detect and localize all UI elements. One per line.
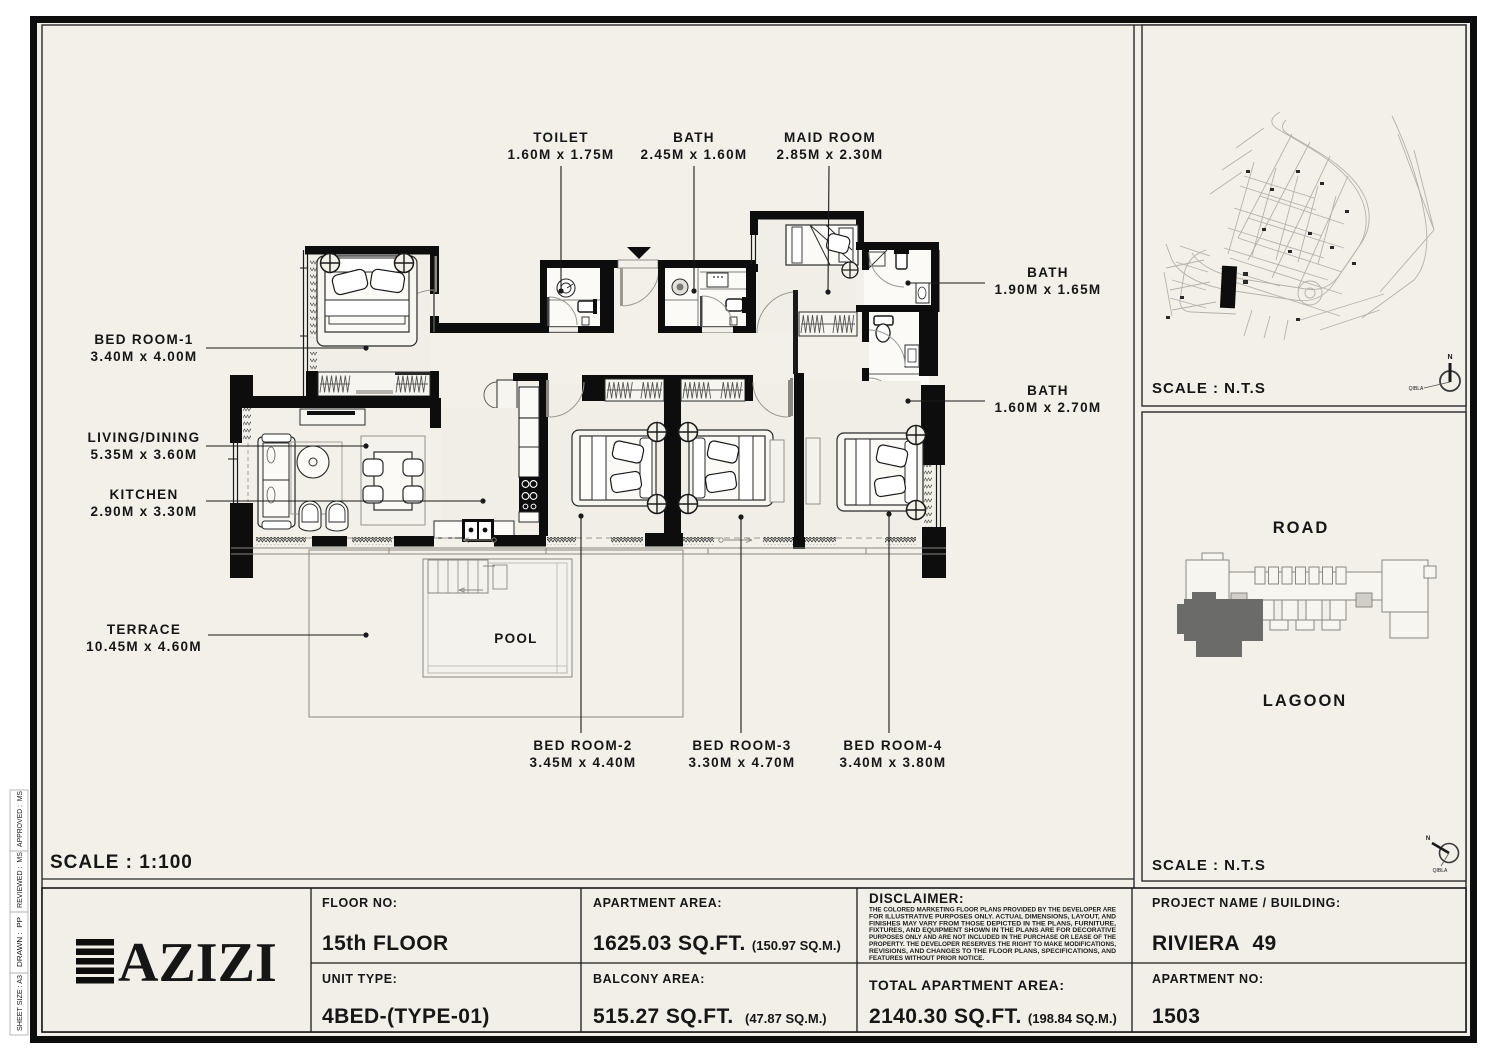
svg-text:N: N: [1447, 354, 1452, 361]
svg-text:TERRACE: TERRACE: [107, 622, 181, 637]
svg-text:TOILET: TOILET: [533, 130, 589, 145]
svg-text:2.90M x 3.30M: 2.90M x 3.30M: [91, 504, 198, 519]
svg-text:SCALE : N.T.S: SCALE : N.T.S: [1152, 857, 1266, 874]
svg-text:QIBLA: QIBLA: [1433, 868, 1448, 874]
svg-text:3.30M x 4.70M: 3.30M x 4.70M: [689, 755, 796, 770]
svg-text:MAID ROOM: MAID ROOM: [784, 130, 876, 145]
svg-text:1.60M x 1.75M: 1.60M x 1.75M: [508, 147, 615, 162]
svg-text:BATH: BATH: [1027, 265, 1069, 280]
svg-text:PROJECT NAME / BUILDING:: PROJECT NAME / BUILDING:: [1152, 896, 1341, 910]
svg-text:SHEET SIZE : A3: SHEET SIZE : A3: [15, 975, 24, 1031]
svg-text:LAGOON: LAGOON: [1263, 692, 1347, 710]
svg-text:1503: 1503: [1152, 1005, 1200, 1028]
svg-text:BED ROOM-4: BED ROOM-4: [843, 738, 942, 753]
svg-text:5.35M x 3.60M: 5.35M x 3.60M: [91, 447, 198, 462]
svg-text:APARTMENT NO:: APARTMENT NO:: [1152, 972, 1264, 986]
svg-text:FLOOR NO:: FLOOR NO:: [322, 896, 398, 910]
svg-text:BALCONY AREA:: BALCONY AREA:: [593, 972, 705, 986]
svg-text:3.45M x 4.40M: 3.45M x 4.40M: [530, 755, 637, 770]
svg-text:APARTMENT AREA:: APARTMENT AREA:: [593, 896, 722, 910]
svg-text:2.45M x 1.60M: 2.45M x 1.60M: [641, 147, 748, 162]
svg-text:3.40M x 4.00M: 3.40M x 4.00M: [91, 349, 198, 364]
svg-text:ROAD: ROAD: [1273, 519, 1330, 537]
svg-text:LIVING/DINING: LIVING/DINING: [88, 430, 201, 445]
svg-text:AZIZI: AZIZI: [118, 932, 277, 994]
svg-text:DRAWN : PP: DRAWN : PP: [15, 917, 24, 967]
svg-text:(47.87 SQ.M.): (47.87 SQ.M.): [745, 1011, 827, 1026]
svg-text:FEATURES WITHOUT PRIOR NOTICE.: FEATURES WITHOUT PRIOR NOTICE.: [869, 955, 984, 962]
svg-text:BED ROOM-3: BED ROOM-3: [692, 738, 791, 753]
svg-text:515.27 SQ.FT.: 515.27 SQ.FT.: [593, 1005, 734, 1028]
svg-text:SCALE : N.T.S: SCALE : N.T.S: [1152, 380, 1266, 397]
svg-text:APPROVED : MS: APPROVED : MS: [15, 791, 24, 847]
svg-text:10.45M x 4.60M: 10.45M x 4.60M: [86, 639, 202, 654]
svg-text:REVIEWED : MS: REVIEWED : MS: [15, 852, 24, 908]
svg-text:DISCLAIMER:: DISCLAIMER:: [869, 891, 964, 906]
svg-text:POOL: POOL: [494, 631, 537, 646]
svg-text:4BED-(TYPE-01): 4BED-(TYPE-01): [322, 1005, 490, 1028]
svg-text:15th FLOOR: 15th FLOOR: [322, 932, 449, 955]
svg-text:TOTAL APARTMENT AREA:: TOTAL APARTMENT AREA:: [869, 977, 1065, 993]
svg-text:RIVIERA 49: RIVIERA 49: [1152, 932, 1277, 955]
svg-text:KITCHEN: KITCHEN: [109, 487, 178, 502]
svg-text:SCALE : 1:100: SCALE : 1:100: [50, 852, 193, 873]
svg-text:BATH: BATH: [1027, 383, 1069, 398]
svg-text:N: N: [1426, 836, 1430, 842]
svg-text:QIBLA: QIBLA: [1409, 386, 1424, 392]
svg-text:BATH: BATH: [673, 130, 715, 145]
svg-text:BED ROOM-2: BED ROOM-2: [533, 738, 632, 753]
svg-text:BED ROOM-1: BED ROOM-1: [94, 332, 193, 347]
svg-text:3.40M x 3.80M: 3.40M x 3.80M: [840, 755, 947, 770]
svg-text:1.60M x 2.70M: 1.60M x 2.70M: [995, 400, 1102, 415]
svg-text:1.90M x 1.65M: 1.90M x 1.65M: [995, 282, 1102, 297]
svg-text:2.85M x 2.30M: 2.85M x 2.30M: [777, 147, 884, 162]
svg-text:UNIT TYPE:: UNIT TYPE:: [322, 972, 397, 986]
